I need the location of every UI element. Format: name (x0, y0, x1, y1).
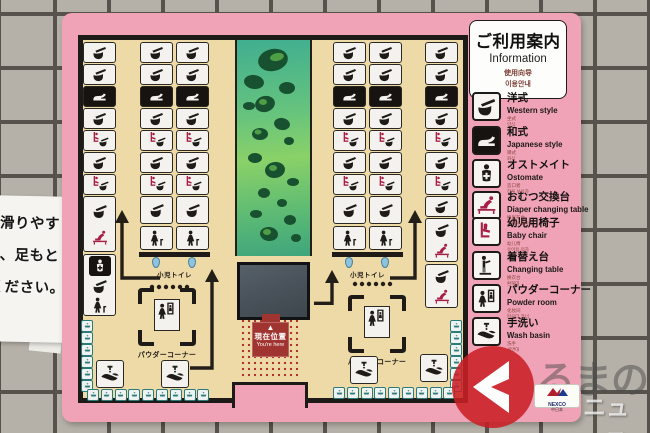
legend-item: 着替え台 Changing table 换衣台환복대 (472, 251, 578, 284)
changing-table-icon (472, 251, 501, 280)
powder-corner-icon (472, 284, 501, 313)
japanese-toilet-icon (472, 126, 501, 155)
watermark-text-2: ニュース (583, 388, 650, 433)
diaper-changing-icon (472, 191, 501, 220)
legend-label-ja: 手洗い (507, 315, 582, 330)
chevron-left-icon (452, 346, 534, 428)
legend-label-en: Powder room (507, 298, 582, 307)
info-title-zh: 使用向导 (470, 68, 566, 78)
legend-label-ja: 洋式 (507, 90, 582, 105)
legend-item: オストメイト Ostomate 造口者장루 보유자 (472, 159, 578, 192)
floor-plan-map: ▲ 現在位置 You're here 小児トイレ小児トイレ パウダーコーナー パ… (78, 35, 468, 403)
wash-basin-icon (472, 317, 501, 346)
legend-label-en: Western style (507, 106, 582, 115)
legend-label-en: Japanese style (507, 140, 582, 149)
legend-label-ja: 幼児用椅子 (507, 215, 582, 230)
legend-label-ja: 着替え台 (507, 249, 582, 264)
legend-item: 幼児用椅子 Baby chair 幼儿椅유아용 의자 (472, 217, 578, 250)
legend-panel: ご利用案内 Information 使用向导 이용안내 洋式 Western s… (468, 18, 578, 370)
direction-arrows (83, 40, 463, 398)
legend-label-en: Baby chair (507, 231, 582, 240)
legend-label-en: Wash basin (507, 331, 582, 340)
info-title-en: Information (470, 53, 566, 65)
nexco-sticker: NEXCO 中日本 (534, 384, 580, 408)
legend-label-ja: パウダーコーナー (507, 282, 582, 297)
western-toilet-icon (472, 92, 501, 121)
dotted-path (150, 282, 392, 289)
ostomate-icon (472, 159, 501, 188)
watermark-logo-circle (452, 346, 534, 428)
info-title-box: ご利用案内 Information 使用向导 이용안내 (469, 20, 567, 99)
nexco-logo-icon (544, 387, 570, 398)
sticker-region: 中日本 (535, 408, 579, 412)
legend-item: 洋式 Western style 坐式양식 (472, 92, 578, 125)
legend-item: パウダーコーナー Powder room 化妆间파우더 코너 (472, 284, 578, 317)
legend-label-ja: オストメイト (507, 157, 582, 172)
caution-line: 、足もと (0, 239, 65, 273)
legend-label-en: Diaper changing table (507, 205, 582, 214)
info-title-ja: ご利用案内 (470, 28, 566, 52)
legend-item: 和式 Japanese style 蹲式화식 (472, 126, 578, 159)
legend-label-ja: 和式 (507, 124, 582, 139)
info-title-ko: 이용안내 (470, 79, 566, 89)
caution-line: 滑りやす (0, 207, 65, 241)
caution-paper-sign: 滑りやす 、足もと ください。 (0, 195, 66, 343)
baby-chair-icon (472, 217, 501, 246)
caution-line: ください。 (0, 271, 64, 305)
legend-label-ja: おむつ交換台 (507, 189, 582, 204)
restroom-guide-map-photo: 滑りやす 、足もと ください。 (0, 0, 650, 433)
legend-label-en: Ostomate (507, 173, 582, 182)
legend-label-en: Changing table (507, 265, 582, 274)
